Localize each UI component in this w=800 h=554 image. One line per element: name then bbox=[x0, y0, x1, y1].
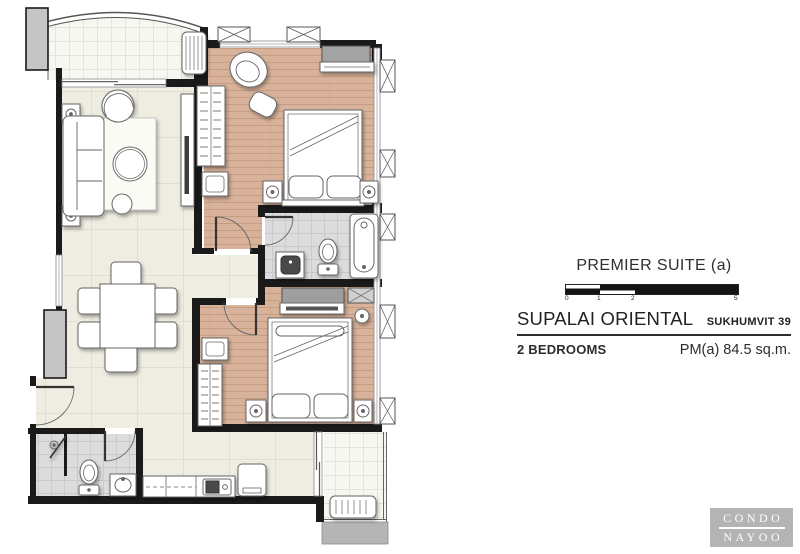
scale-tick: 2 bbox=[631, 295, 635, 302]
casement-window-icon bbox=[380, 305, 395, 338]
project-location: SUKHUMVIT 39 bbox=[707, 316, 791, 328]
scale-segment bbox=[635, 285, 738, 294]
sink-second bbox=[110, 474, 136, 496]
wardrobe-bedroom2 bbox=[198, 364, 222, 426]
title-block: PREMIER SUITE (a) 0 1 2 5 SUPALAI ORIENT… bbox=[517, 257, 791, 358]
watermark-line2: NAYOO bbox=[720, 531, 783, 544]
floor-plan-page: PREMIER SUITE (a) 0 1 2 5 SUPALAI ORIENT… bbox=[0, 0, 800, 554]
bathtub bbox=[350, 214, 378, 278]
dining-table bbox=[100, 284, 155, 348]
project-name: SUPALAI ORIENTAL bbox=[517, 308, 693, 330]
sofa bbox=[63, 116, 104, 216]
west-window bbox=[56, 255, 62, 306]
scale-bar bbox=[565, 284, 739, 295]
bed-master bbox=[282, 110, 364, 206]
sink-master bbox=[276, 252, 304, 278]
kitchen-counter bbox=[143, 476, 235, 497]
toilet-second bbox=[79, 460, 99, 495]
scale-segment bbox=[600, 285, 634, 294]
tv-console-living bbox=[181, 94, 194, 206]
column bbox=[26, 8, 48, 70]
dining-chair bbox=[153, 288, 177, 314]
casement-window-icon bbox=[380, 398, 395, 424]
nightstand bbox=[354, 400, 372, 422]
watermark-divider bbox=[719, 527, 785, 529]
bedrooms-label: 2 BEDROOMS bbox=[517, 342, 606, 357]
ac-unit-balcony bbox=[182, 32, 206, 74]
scale-tick: 5 bbox=[734, 295, 738, 302]
casement-window-icon bbox=[287, 27, 320, 42]
balcony-sliding-door bbox=[62, 79, 166, 87]
scale-ticks: 0 1 2 5 bbox=[565, 295, 739, 303]
bed-second bbox=[268, 318, 352, 422]
area-row: 2 BEDROOMS PM(a) 84.5 sq.m. bbox=[517, 342, 791, 358]
casement-window-icon bbox=[218, 27, 250, 42]
project-row: SUPALAI ORIENTAL SUKHUMVIT 39 bbox=[517, 308, 791, 336]
wardrobe-master bbox=[197, 86, 225, 166]
tv-cabinet-bedroom2 bbox=[280, 288, 344, 314]
column bbox=[44, 310, 66, 378]
nightstand bbox=[360, 181, 378, 203]
floor-lamp bbox=[355, 309, 369, 323]
unit-area: PM(a) 84.5 sq.m. bbox=[680, 342, 791, 358]
stool bbox=[112, 194, 132, 214]
cabinet-bedroom2 bbox=[202, 338, 228, 360]
ac-unit-rear bbox=[330, 496, 376, 518]
casement-window-icon bbox=[380, 214, 395, 240]
dining-chair bbox=[78, 322, 102, 348]
casement-window-icon bbox=[380, 150, 395, 177]
coffee-table bbox=[113, 147, 147, 181]
toilet-master bbox=[318, 239, 338, 275]
unit-type-title: PREMIER SUITE (a) bbox=[517, 257, 791, 275]
dining-chair bbox=[105, 346, 137, 372]
casement-window-icon bbox=[380, 60, 395, 92]
service-shaft bbox=[348, 288, 374, 303]
scale-tick: 0 bbox=[565, 295, 569, 302]
refrigerator bbox=[238, 464, 266, 496]
kitchen-sliding-door bbox=[314, 432, 322, 496]
dresser-master bbox=[320, 46, 374, 72]
condonayoo-watermark: CONDO NAYOO bbox=[710, 508, 793, 547]
nightstand bbox=[263, 181, 282, 203]
dining-chair bbox=[111, 262, 141, 286]
nightstand bbox=[246, 400, 266, 422]
dining-chair bbox=[153, 322, 177, 348]
watermark-line1: CONDO bbox=[720, 512, 784, 525]
cabinet-master bbox=[202, 172, 228, 196]
dining-chair bbox=[78, 288, 102, 314]
scale-segment bbox=[566, 285, 600, 294]
scale-tick: 1 bbox=[597, 295, 601, 302]
